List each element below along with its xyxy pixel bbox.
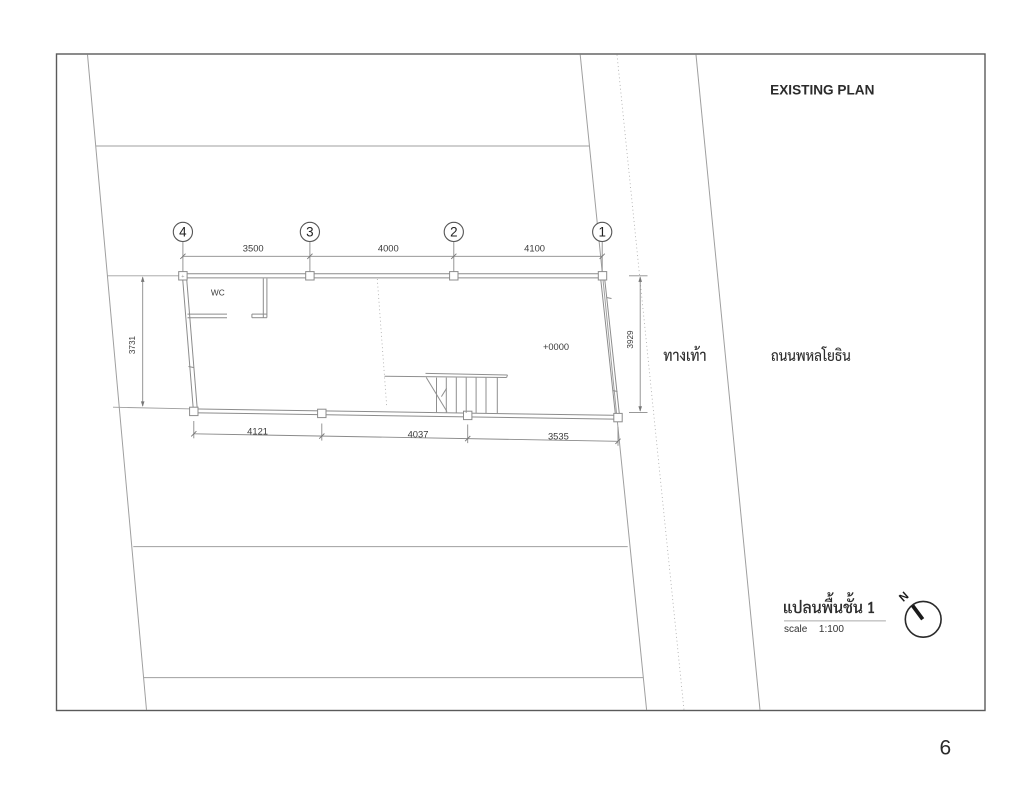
svg-text:4121: 4121 (247, 425, 268, 436)
svg-text:2: 2 (450, 225, 457, 240)
svg-text:1:100: 1:100 (819, 624, 844, 635)
svg-text:6: 6 (940, 737, 952, 760)
svg-text:4000: 4000 (378, 243, 399, 254)
svg-text:3500: 3500 (243, 243, 264, 254)
svg-text:4100: 4100 (524, 243, 545, 254)
svg-text:3731: 3731 (128, 335, 137, 354)
svg-text:WC: WC (211, 287, 225, 297)
svg-text:4: 4 (179, 225, 187, 240)
svg-text:EXISTING PLAN: EXISTING PLAN (770, 82, 874, 97)
svg-text:+: + (181, 274, 184, 280)
svg-text:3: 3 (306, 225, 313, 240)
svg-text:4037: 4037 (408, 428, 429, 439)
svg-text:3535: 3535 (548, 431, 569, 442)
svg-text:1: 1 (598, 225, 605, 240)
svg-text:3929: 3929 (626, 330, 635, 349)
svg-text:+0000: +0000 (543, 342, 569, 352)
svg-text:scale: scale (784, 624, 808, 635)
